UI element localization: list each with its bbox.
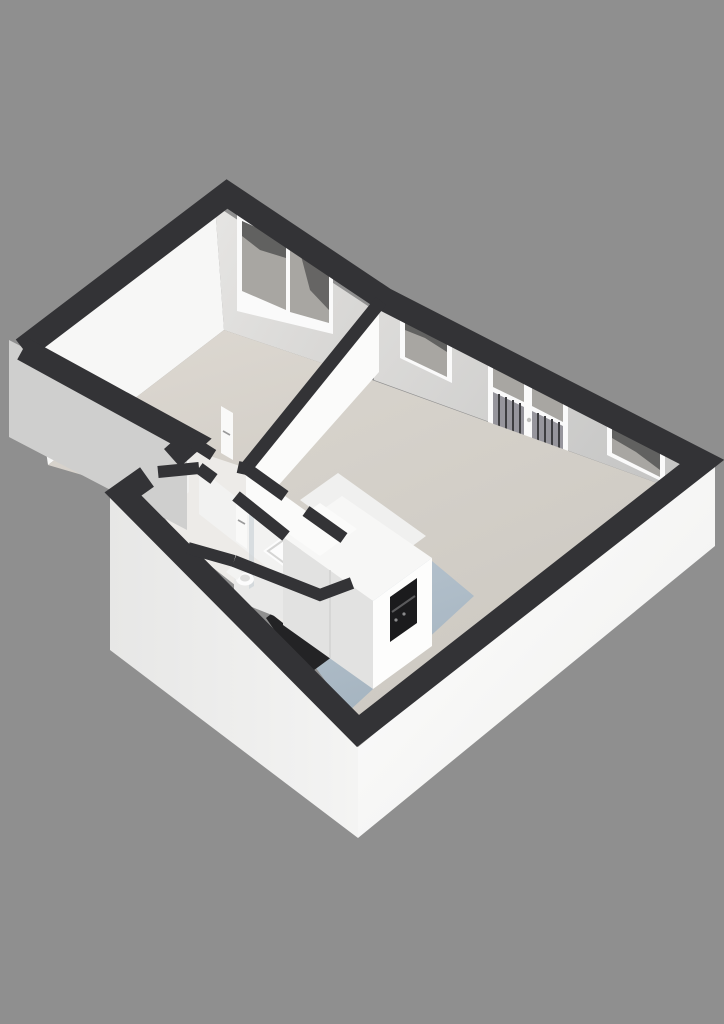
oven-knob xyxy=(394,618,397,621)
utility-wall-band xyxy=(158,468,199,472)
toilet-seat xyxy=(240,575,250,582)
door-handle xyxy=(527,418,531,422)
bedroom-door xyxy=(221,406,233,460)
apartment-floorplan xyxy=(0,0,724,1024)
floorplan-canvas xyxy=(0,0,724,1024)
oven-knob xyxy=(402,612,405,615)
